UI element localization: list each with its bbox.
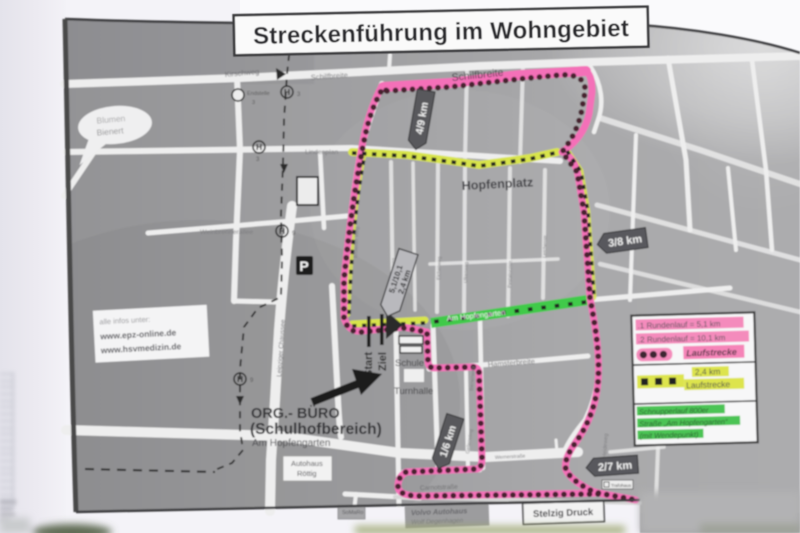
svg-text:Lerchenstr.: Lerchenstr. [542,234,549,258]
svg-text:3: 3 [252,100,255,106]
svg-text:ORG.- BÜRO: ORG.- BÜRO [251,405,340,422]
svg-text:Röttig: Röttig [297,469,317,478]
svg-text:Stelzig Druck: Stelzig Druck [533,507,594,520]
svg-text:H: H [284,87,290,97]
svg-text:Schule: Schule [395,358,424,369]
svg-text:Pestalozzistr.: Pestalozzistr. [507,260,514,288]
svg-text:H: H [256,142,262,152]
svg-text:Lindenplan: Lindenplan [305,149,338,156]
svg-text:2/7 km: 2/7 km [598,460,633,474]
svg-text:Schnupperlauf 800er: Schnupperlauf 800er [639,406,709,417]
svg-text:(mit Wendepunkt): (mit Wendepunkt) [639,430,699,441]
svg-text:H: H [279,226,285,236]
svg-text:Carnotstraße: Carnotstraße [420,484,459,492]
svg-text:Trafohaus: Trafohaus [611,483,632,488]
svg-text:Weinbrennerallee: Weinbrennerallee [200,229,253,236]
svg-text:H: H [237,374,243,384]
svg-text:Turnhalle: Turnhalle [394,386,433,397]
svg-text:Ziel: Ziel [377,352,389,371]
svg-text:Ulkenweg: Ulkenweg [463,261,470,283]
svg-text:SoMaRo: SoMaRo [342,510,363,516]
svg-text:(Schulhofbereich): (Schulhofbereich) [250,421,382,438]
svg-text:Laufstrecke: Laufstrecke [686,347,737,358]
svg-text:Eichenweg: Eichenweg [436,256,443,280]
svg-text:Am Hopfengarten: Am Hopfengarten [252,438,330,449]
svg-text:P: P [299,258,308,274]
svg-text:2,4 km: 2,4 km [695,366,721,377]
svg-text:Autohaus: Autohaus [291,459,323,468]
svg-text:Laufstrecke: Laufstrecke [686,379,730,390]
svg-text:Endstelle: Endstelle [247,91,270,97]
